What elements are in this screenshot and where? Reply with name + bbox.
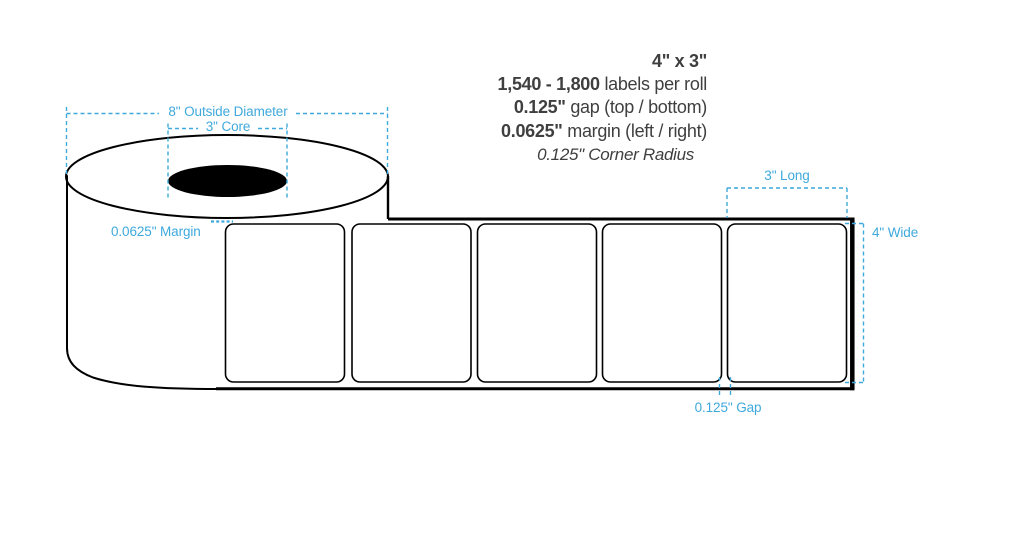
label-rect-2 [352, 224, 471, 382]
spec-gap-suffix: gap (top / bottom) [570, 97, 707, 117]
spec-margin: 0.0625" margin (left / right) [498, 120, 707, 143]
spec-block: 4" x 3" 1,540 - 1,800 labels per roll 0.… [498, 50, 707, 166]
spec-size: 4" x 3" [498, 50, 707, 73]
label-rect-3 [478, 224, 597, 382]
label-gap-label: 0.125" Gap [695, 400, 762, 415]
core-label: 3" Core [206, 119, 251, 134]
roll-core-hole [168, 165, 287, 197]
spec-size-value: 4" x 3" [652, 51, 707, 71]
spec-gap-value: 0.125" [514, 97, 566, 117]
outside-diameter-label: 8" Outside Diameter [168, 104, 287, 119]
spec-corner-radius: 0.125" Corner Radius [498, 143, 707, 166]
spec-quantity-suffix: labels per roll [604, 74, 707, 94]
label-width-label: 4" Wide [872, 225, 918, 240]
liner-strip [216, 218, 854, 391]
spec-gap: 0.125" gap (top / bottom) [498, 96, 707, 119]
side-margin-label: 0.0625" Margin [111, 224, 201, 239]
spec-quantity-value: 1,540 - 1,800 [498, 74, 600, 94]
label-roll-spec-diagram: 8" Outside Diameter 3" Core 0.0625" Marg… [0, 0, 1015, 545]
spec-margin-suffix: margin (left / right) [567, 121, 707, 141]
spec-quantity: 1,540 - 1,800 labels per roll [498, 73, 707, 96]
label-rect-4 [603, 224, 722, 382]
spec-margin-value: 0.0625" [501, 121, 563, 141]
label-length-label: 3" Long [764, 168, 809, 183]
label-rect-5 [728, 224, 847, 382]
label-rect-1 [226, 224, 345, 382]
